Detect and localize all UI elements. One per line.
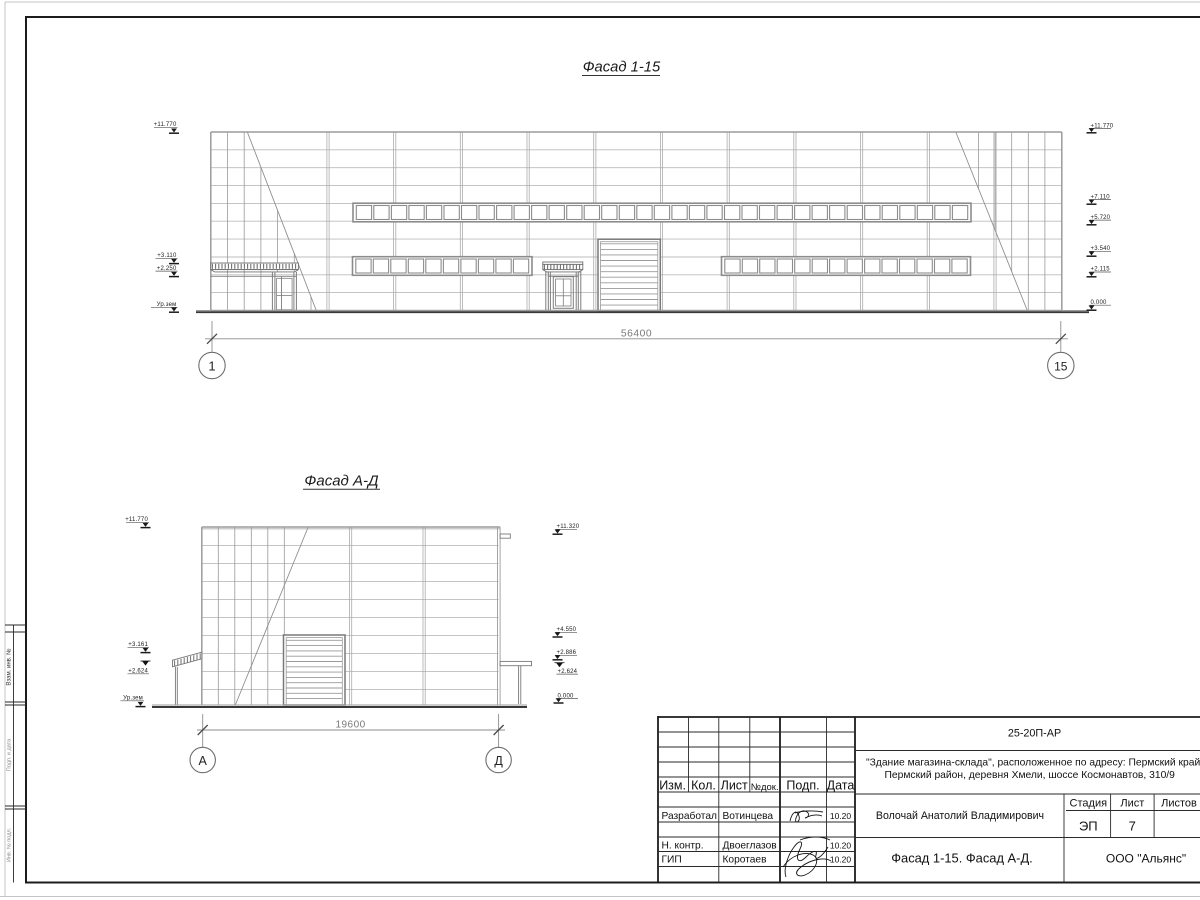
svg-text:ЭП: ЭП: [1079, 819, 1098, 834]
svg-text:10.20: 10.20: [830, 855, 852, 865]
svg-text:Д: Д: [494, 754, 503, 768]
svg-text:Кол.: Кол.: [691, 778, 716, 792]
svg-text:Подп.: Подп.: [786, 778, 819, 792]
svg-text:7: 7: [1129, 819, 1136, 834]
svg-text:15: 15: [1054, 360, 1068, 374]
svg-text:Фасад 1-15: Фасад 1-15: [583, 60, 661, 76]
svg-text:Листов: Листов: [1161, 798, 1197, 810]
svg-text:Лист: Лист: [721, 778, 748, 792]
svg-text:Фасад 1-15. Фасад А-Д.: Фасад 1-15. Фасад А-Д.: [891, 851, 1033, 866]
svg-text:10.20: 10.20: [830, 841, 852, 851]
svg-text:"Здание магазина-склада", расп: "Здание магазина-склада", расположенное …: [866, 758, 1200, 769]
svg-text:Коротаев: Коротаев: [723, 855, 767, 866]
svg-text:Лист: Лист: [1120, 798, 1144, 810]
svg-text:ГИП: ГИП: [662, 855, 682, 866]
svg-text:А: А: [199, 754, 208, 768]
svg-text:10.20: 10.20: [830, 811, 852, 821]
svg-text:56400: 56400: [621, 328, 652, 339]
svg-text:Разработал: Разработал: [662, 810, 718, 822]
svg-text:Стадия: Стадия: [1070, 798, 1108, 810]
svg-text:Пермский район, деревня Хмели,: Пермский район, деревня Хмели, шоссе Кос…: [885, 770, 1176, 781]
svg-text:Двоеглазов: Двоеглазов: [723, 841, 777, 852]
svg-text:№док.: №док.: [751, 782, 779, 793]
svg-text:Подп. и дата: Подп. и дата: [7, 738, 13, 771]
svg-text:Дата: Дата: [827, 778, 855, 792]
svg-text:1: 1: [208, 359, 215, 374]
svg-text:Н. контр.: Н. контр.: [662, 841, 704, 852]
svg-text:ООО "Альянс": ООО "Альянс": [1106, 852, 1186, 866]
svg-text:19600: 19600: [335, 720, 365, 731]
svg-text:Инв. № подл.: Инв. № подл.: [7, 827, 13, 862]
svg-text:Взам. инв. №: Взам. инв. №: [6, 648, 13, 685]
svg-text:Фасад А-Д: Фасад А-Д: [304, 473, 379, 490]
svg-text:25-20П-АР: 25-20П-АР: [1008, 728, 1061, 740]
svg-text:Волочай Анатолий Владимирович: Волочай Анатолий Владимирович: [876, 810, 1044, 822]
svg-text:Изм.: Изм.: [659, 778, 686, 792]
svg-text:Вотинцева: Вотинцева: [723, 811, 774, 822]
